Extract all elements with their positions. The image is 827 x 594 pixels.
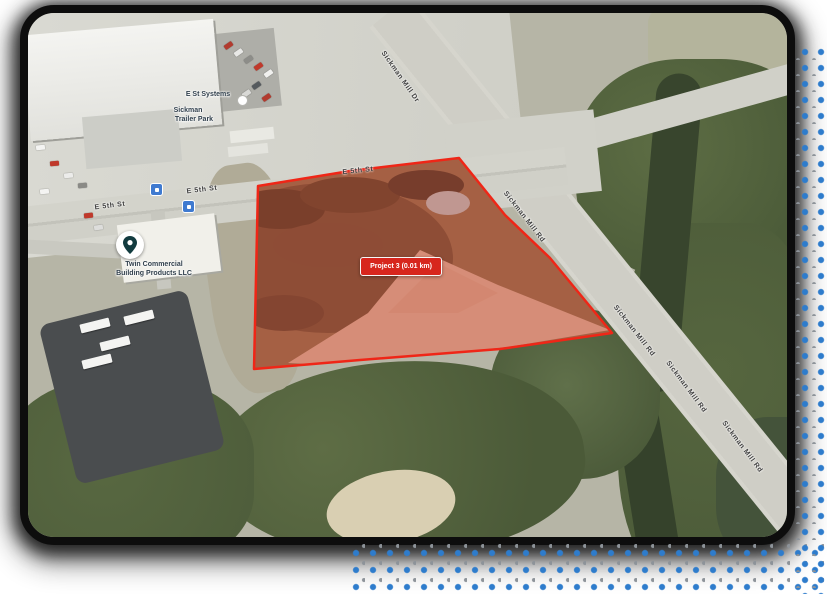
transit-stop-icon[interactable] (182, 200, 195, 213)
satellite-map[interactable]: E 5th St E 5th St E 5th St Sickman Mill … (28, 13, 787, 537)
poi-label: E St Systems (186, 91, 230, 98)
halftone-dots-right (796, 44, 827, 594)
halftone-dots-bottom (348, 544, 827, 594)
location-pin-icon (123, 236, 137, 254)
poi-dot[interactable] (237, 95, 248, 106)
business-label-line1: Twin Commercial (125, 261, 182, 268)
map-card[interactable]: E 5th St E 5th St E 5th St Sickman Mill … (20, 5, 795, 545)
business-label-line2: Building Products LLC (116, 270, 192, 277)
park-label-line2: Trailer Park (175, 116, 213, 123)
transit-stop-icon[interactable] (150, 183, 163, 196)
project-label-chip: Project 3 (0.01 km) (360, 257, 442, 276)
park-label-line1: Sickman (174, 107, 203, 114)
place-marker[interactable] (116, 231, 144, 259)
